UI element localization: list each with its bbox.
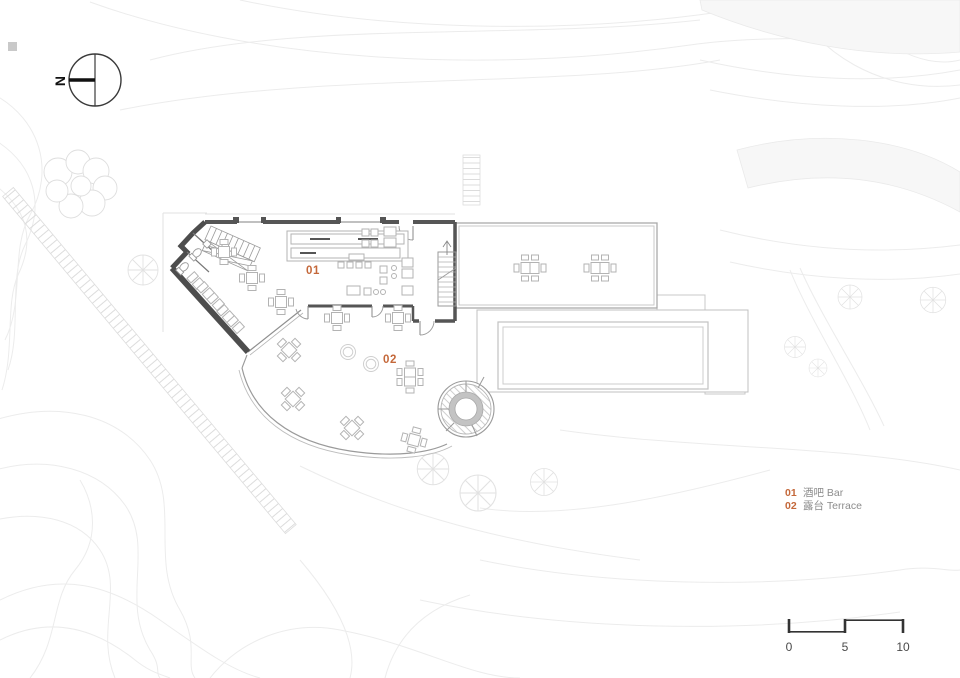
tree-cloud <box>44 150 117 218</box>
tree-icon <box>920 287 946 313</box>
pool <box>498 322 708 389</box>
tree-icon <box>417 453 449 485</box>
terrace-table <box>325 306 350 331</box>
terrace-table <box>271 332 306 367</box>
building <box>163 213 456 355</box>
tree-icon <box>128 255 158 285</box>
scale-bar: 0 5 10 <box>786 619 910 654</box>
planter <box>341 345 356 360</box>
tree-icon <box>809 359 827 377</box>
terrace-furniture <box>271 306 429 456</box>
tree-icon <box>838 285 862 309</box>
terrace-table <box>334 410 369 445</box>
upper-terrace <box>456 223 657 308</box>
site-plan-drawing: 01 02 N 01 酒吧 Bar 02 露台 Terrace 0 5 10 <box>0 0 960 678</box>
tree-icon <box>531 469 558 496</box>
legend-label-2: 露台 Terrace <box>803 499 862 512</box>
upper-stair-path <box>463 155 480 205</box>
north-arrow-icon: N <box>52 54 121 106</box>
terrace-table <box>386 306 411 331</box>
scale-5: 5 <box>842 640 849 654</box>
legend-num-2: 02 <box>785 500 797 512</box>
tree-icon <box>460 475 496 511</box>
terrace-table <box>397 361 423 393</box>
room-label-terrace: 02 <box>383 354 397 366</box>
hillside-bands <box>8 0 960 212</box>
floor-plan-page: 01 02 N 01 酒吧 Bar 02 露台 Terrace 0 5 10 <box>0 0 960 678</box>
scale-0: 0 <box>786 640 793 654</box>
legend-label-1: 酒吧 Bar <box>803 486 844 499</box>
small-structure-marker <box>8 42 17 51</box>
outdoor-decks <box>456 223 748 394</box>
north-label: N <box>52 76 68 86</box>
scale-10: 10 <box>896 640 910 654</box>
terrace-table <box>275 381 310 416</box>
room-label-bar: 01 <box>306 265 320 277</box>
tree-icon <box>785 337 806 358</box>
legend-num-1: 01 <box>785 487 797 499</box>
legend: 01 酒吧 Bar 02 露台 Terrace <box>785 486 862 512</box>
planter <box>364 357 379 372</box>
